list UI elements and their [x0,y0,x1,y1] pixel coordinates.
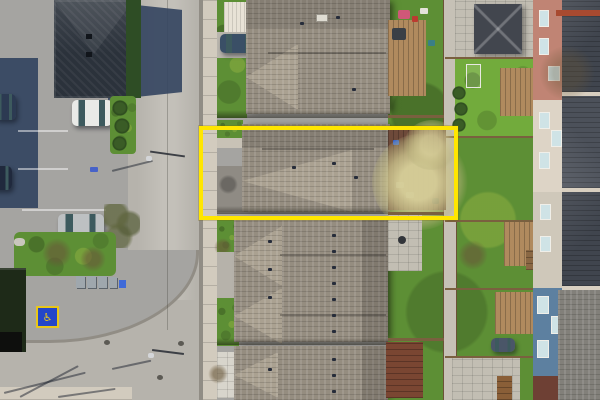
island-bush-2 [114,118,130,134]
utility-box-1 [76,276,85,288]
accessible-parking-marking: ♿ [36,306,59,328]
manhole-2 [178,341,184,346]
lane-car [491,338,515,352]
row1-vent-2 [336,16,340,19]
blue-bin [119,280,126,288]
row3-vent-b6 [332,314,336,317]
row4-vent-3 [332,390,336,393]
wood-deck-3 [495,292,533,334]
row1-ridge [268,52,386,54]
utility-box-2 [87,276,96,288]
row1-eave-shadow [217,110,390,118]
stall-line-1 [18,130,68,132]
row3-vent-a3 [268,296,272,299]
row3-vent-b5 [332,298,336,301]
dark-car-1 [0,94,16,120]
row4-vent-1 [332,358,336,361]
row3-roof-shade [362,220,388,342]
evergreen-hedge [126,0,141,98]
fence-n3 [445,220,535,222]
yard-bush-1 [452,86,466,100]
fence-row3 [388,338,444,341]
streetlight-head-2 [148,353,154,358]
clutter-red [412,16,418,22]
row3-vent-a1 [268,240,272,243]
row4-front-tree [208,364,228,384]
soccer-goal [466,64,481,88]
row3-vent-b2 [332,250,336,253]
wood-deck-1 [500,68,534,116]
row3-vent-b7 [332,330,336,333]
fence-n1 [445,57,535,59]
chimney-2 [86,52,92,57]
white-car [72,100,112,126]
roof-gap-wall-2 [562,188,600,192]
cream-window-1 [539,112,550,129]
utility-box-3 [98,276,107,288]
roof-gap-wall-3 [562,286,600,290]
row3-vent-b3 [332,266,336,269]
neighbor-bare-tree [458,240,488,270]
row4-vent-2 [332,374,336,377]
clutter-teal [428,40,435,46]
fence-n4 [445,288,535,290]
row3-vent-b4 [332,282,336,285]
dark-roof-2 [562,96,600,188]
aerial-photo: ♿ [0,0,600,400]
cream-window-3 [539,152,550,169]
manhole-1 [104,340,110,345]
red-fascia [556,10,600,16]
garden-shed-roof [386,342,423,398]
gazebo-roof [474,4,522,54]
property-lot-outline [199,126,458,220]
manhole-3 [157,375,163,380]
row3-vent-b1 [332,234,336,237]
fence-row1 [388,115,444,118]
twiggy-tree-right [538,46,596,100]
utility-box-4 [109,277,117,288]
stall-line-2 [18,168,68,170]
island-bush-1 [112,100,128,116]
row3-vent-a2 [268,268,272,271]
blue-window-1 [537,296,549,314]
row1-vent-1 [300,22,304,25]
cream2-window-1 [540,204,551,220]
row3-stone-patio [388,215,422,271]
yard-bush-2 [454,102,468,116]
truck-cab [0,332,22,352]
cream2-window-2 [540,236,551,252]
chimney-1 [86,34,92,39]
bare-tree-1 [42,238,72,268]
wood-ladder [497,376,512,400]
cream-window-2 [551,130,562,147]
row1-skylight [316,14,328,22]
row4-roof-shade [362,346,388,400]
dark-roof-3 [562,192,600,286]
firepit [398,236,406,244]
clutter-dark [392,28,406,40]
landscape-stone [14,238,25,246]
row3-eave-shadow [217,338,388,345]
wheelchair-symbol: ♿ [43,312,53,323]
blue-window-3 [537,340,549,358]
clutter-white [420,8,428,14]
row1-vent-3 [352,88,356,91]
dark-car-2 [0,166,12,190]
bare-tree-2 [80,246,106,272]
gray-roof-bottom [558,290,600,400]
fence-n5 [445,356,535,358]
row4-vent-4 [268,368,272,371]
island-bush-3 [112,136,127,151]
clutter-pink [398,10,410,19]
streetlight-head-1 [146,156,152,161]
stall-line-3 [22,209,106,211]
brick-window-1 [539,10,549,27]
blue-cart [90,167,98,172]
